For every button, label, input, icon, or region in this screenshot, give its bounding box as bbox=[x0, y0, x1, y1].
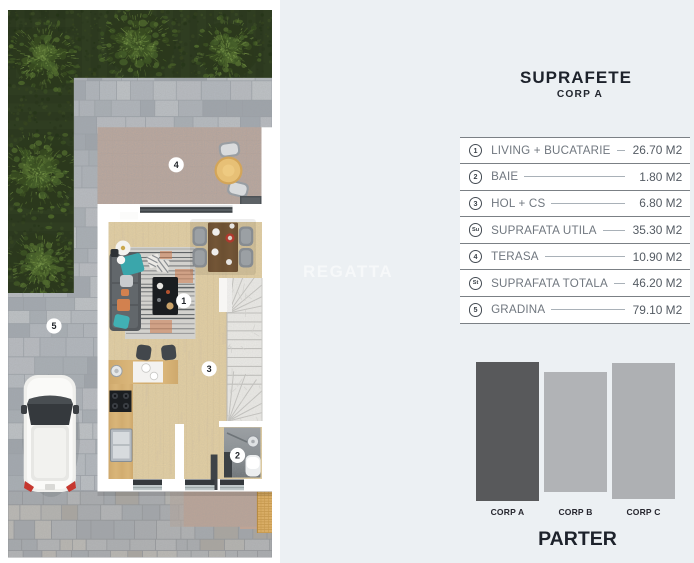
svg-text:5: 5 bbox=[51, 321, 56, 331]
svg-text:4: 4 bbox=[174, 160, 179, 170]
svg-text:3: 3 bbox=[207, 364, 212, 374]
svg-text:1: 1 bbox=[181, 296, 186, 306]
svg-text:2: 2 bbox=[235, 451, 240, 461]
